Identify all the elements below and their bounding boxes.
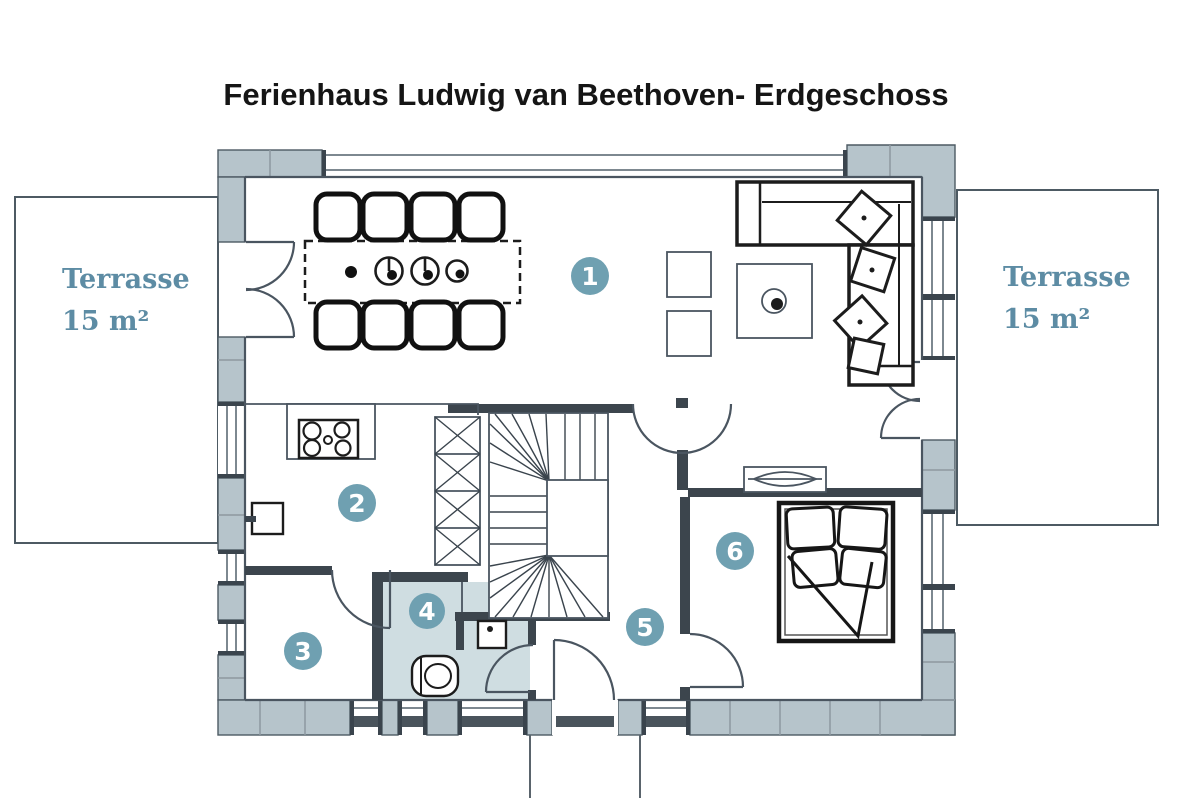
kitchen-sink — [245, 503, 283, 534]
terrace-left-area: 15 m² — [62, 306, 149, 337]
door-hall — [633, 404, 731, 453]
stove — [299, 420, 358, 458]
hall-door-post — [676, 398, 688, 408]
door-entrance — [554, 640, 614, 700]
window-right-3 — [922, 510, 955, 584]
door-terrace-left — [246, 242, 294, 337]
wall-room3-bath — [372, 575, 383, 700]
window-bottom-4 — [642, 700, 690, 735]
stair-landing — [547, 480, 608, 556]
window-right-2 — [922, 300, 955, 360]
terrace-right-outline — [957, 190, 1158, 525]
entry-walkway — [530, 735, 640, 798]
window-left-kitchen — [218, 402, 245, 478]
terrace-left: Terrasse 15 m² — [15, 197, 218, 543]
door-bedroom — [690, 634, 743, 687]
wall-bedroom-left — [680, 497, 690, 634]
svg-text:1: 1 — [581, 262, 598, 291]
room-badge-2: 2 — [338, 484, 376, 522]
room-badge-5: 5 — [626, 608, 664, 646]
window-bottom-2 — [398, 700, 427, 735]
coffee-table — [737, 264, 812, 338]
wall-bedroom-left-stub — [680, 687, 690, 700]
floor-plan-page: Ferienhaus Ludwig van Beethoven- Erdgesc… — [0, 0, 1200, 800]
staircase — [489, 413, 608, 618]
double-bed — [779, 503, 893, 641]
shelf-unit — [435, 417, 480, 565]
toilet — [412, 656, 458, 696]
wall-room3-top — [245, 566, 332, 575]
wall-hall-post — [677, 450, 688, 490]
wall-shower-corner — [456, 612, 464, 650]
window-right-4 — [922, 590, 955, 633]
svg-text:3: 3 — [294, 637, 311, 666]
svg-text:4: 4 — [418, 597, 435, 626]
room-badge-6: 6 — [716, 532, 754, 570]
room-badge-1: 1 — [571, 257, 609, 295]
room-badge-3: 3 — [284, 632, 322, 670]
bathroom-sink — [478, 621, 506, 648]
window-left-small-1 — [218, 550, 245, 585]
window-bottom-3 — [458, 700, 527, 735]
entrance-threshold — [552, 700, 618, 735]
kitchen — [245, 404, 480, 565]
window-top-front — [322, 150, 847, 177]
room-badge-4: 4 — [409, 593, 445, 629]
page-title: Ferienhaus Ludwig van Beethoven- Erdgesc… — [223, 77, 948, 112]
window-left-small-2 — [218, 620, 245, 655]
sideboard — [744, 467, 826, 492]
wall-bath-top — [372, 572, 468, 582]
svg-text:2: 2 — [348, 489, 365, 518]
living-room — [667, 182, 913, 385]
terrace-right-label: Terrasse — [1003, 262, 1131, 293]
terrace-left-label: Terrasse — [62, 264, 190, 295]
svg-text:5: 5 — [636, 613, 653, 642]
terrace-right: Terrasse 15 m² — [957, 190, 1158, 525]
wall-stair-top — [448, 404, 633, 413]
terrace-left-outline — [15, 197, 218, 543]
window-right-1 — [922, 217, 955, 294]
dining-set — [305, 194, 520, 348]
window-bottom-1 — [350, 700, 382, 735]
terrace-right-area: 15 m² — [1003, 304, 1090, 335]
svg-text:6: 6 — [726, 537, 743, 566]
ottomans — [667, 252, 711, 356]
floor-plan: Ferienhaus Ludwig van Beethoven- Erdgesc… — [0, 0, 1200, 800]
table-item-bowl — [345, 266, 357, 278]
